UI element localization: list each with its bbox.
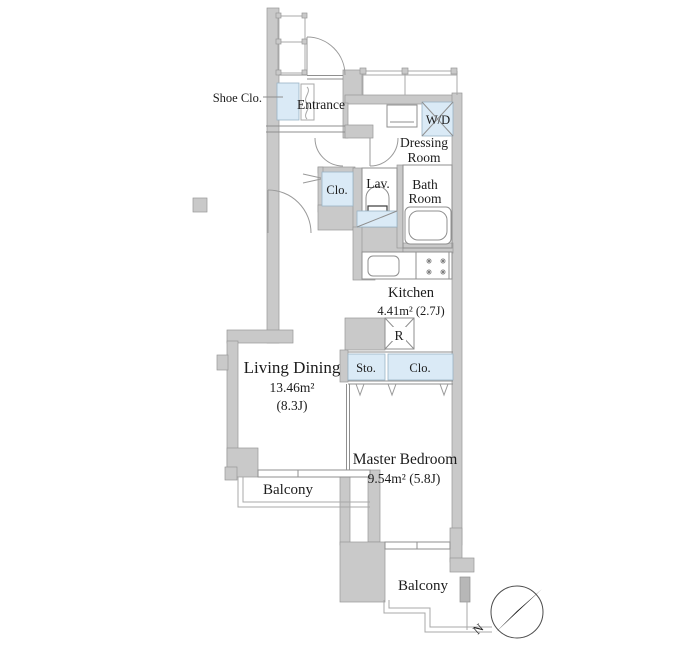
kitchen-area-label: 4.41m² (2.7J) (377, 304, 444, 318)
railing-panel (278, 16, 305, 42)
railing-post (302, 39, 307, 44)
vanity-icon (387, 105, 417, 127)
railing-post (451, 68, 457, 74)
railing-post (302, 13, 307, 18)
railing-post (276, 39, 281, 44)
washroom-door-swing-icon (315, 138, 343, 166)
entrance-threshold (307, 76, 343, 80)
wall-stub (193, 198, 207, 212)
wall-segment (225, 467, 237, 480)
balcony-living-label: Balcony (263, 482, 313, 498)
wall-segment (340, 542, 385, 602)
corridor-railing (276, 13, 457, 95)
railing-panel (278, 42, 305, 73)
dressing-door-swing-icon (370, 138, 398, 166)
balcony-bedroom-label: Balcony (398, 578, 448, 594)
wall-segment (345, 125, 373, 138)
entrance-door-swing-icon (307, 37, 345, 75)
living-dining-label: Living Dining (244, 358, 341, 377)
living-dining-area-label: 13.46m² (270, 380, 315, 395)
railing-post (276, 70, 281, 75)
railing-post (402, 68, 408, 74)
floor-plan-drawing: N Shoe Clo. Entrance W/D Dressing Room C… (0, 0, 700, 650)
wall-segment (452, 93, 462, 545)
bathtub-icon (405, 207, 451, 244)
dressing-room-label-line1: Dressing (400, 135, 448, 150)
washer-dryer-label: W/D (426, 113, 450, 127)
wall-segment (340, 472, 350, 545)
living-balcony-window (258, 470, 370, 477)
compass-icon: N (470, 586, 543, 638)
storage-label: Sto. (356, 361, 376, 375)
wall-segment (345, 318, 385, 350)
shoe-closet-box (277, 83, 299, 120)
lavatory-label: Lav. (366, 176, 390, 191)
wall-segment (340, 350, 348, 382)
ld-bedroom-partition (347, 384, 350, 472)
railing-post (276, 13, 281, 18)
master-bedroom-label: Master Bedroom (353, 451, 458, 468)
railing-post (360, 68, 366, 74)
wall-post (460, 577, 470, 602)
railing-post (302, 70, 307, 75)
wall-segment (450, 558, 474, 572)
sliding-door-marks (356, 384, 448, 395)
wall-segment (450, 528, 462, 562)
kitchen-label: Kitchen (388, 285, 435, 301)
dressing-room-label-line2: Room (407, 150, 441, 165)
compass-north-label: N (470, 621, 486, 637)
master-bedroom-area-label: 9.54m² (5.8J) (368, 471, 441, 486)
wall-segment (397, 165, 403, 248)
floor-plan: N Shoe Clo. Entrance W/D Dressing Room C… (0, 0, 700, 650)
wall-segment (217, 355, 228, 370)
bathroom-label-line1: Bath (412, 177, 438, 192)
shoe-closet-label: Shoe Clo. (213, 91, 262, 105)
wall-segment (267, 8, 279, 343)
hall-closet-label: Clo. (326, 183, 347, 197)
entrance-label: Entrance (297, 97, 345, 112)
refrigerator-label: R (394, 328, 403, 343)
bathroom-label-line2: Room (408, 191, 442, 206)
railing-rail (362, 71, 457, 95)
living-dining-tatami-label: (8.3J) (276, 398, 307, 413)
bedroom-closet-label: Clo. (409, 361, 430, 375)
